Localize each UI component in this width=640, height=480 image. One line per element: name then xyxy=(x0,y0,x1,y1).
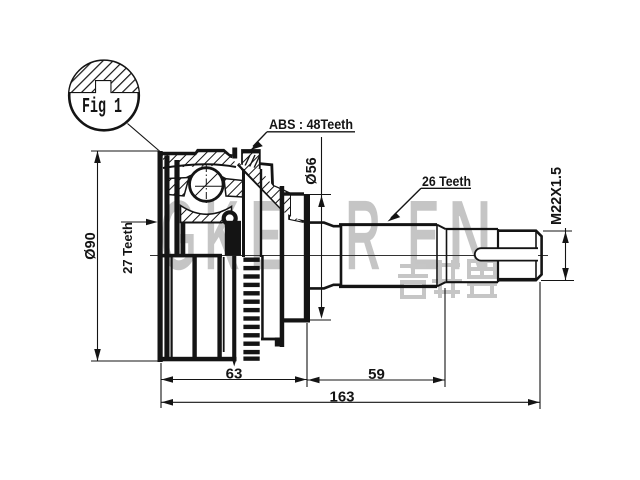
svg-text:163: 163 xyxy=(329,389,354,406)
svg-text:R: R xyxy=(345,180,381,292)
svg-text:63: 63 xyxy=(226,366,243,383)
svg-text:ABS : 48Teeth: ABS : 48Teeth xyxy=(269,117,353,132)
svg-text:26 Teeth: 26 Teeth xyxy=(422,174,471,189)
svg-text:Ø56: Ø56 xyxy=(304,157,320,184)
svg-text:Fig 1: Fig 1 xyxy=(82,96,122,119)
svg-text:27 Teeth: 27 Teeth xyxy=(120,222,135,274)
svg-text:59: 59 xyxy=(368,366,385,383)
svg-text:M22X1.5: M22X1.5 xyxy=(549,167,565,225)
svg-text:Ø90: Ø90 xyxy=(83,232,99,259)
